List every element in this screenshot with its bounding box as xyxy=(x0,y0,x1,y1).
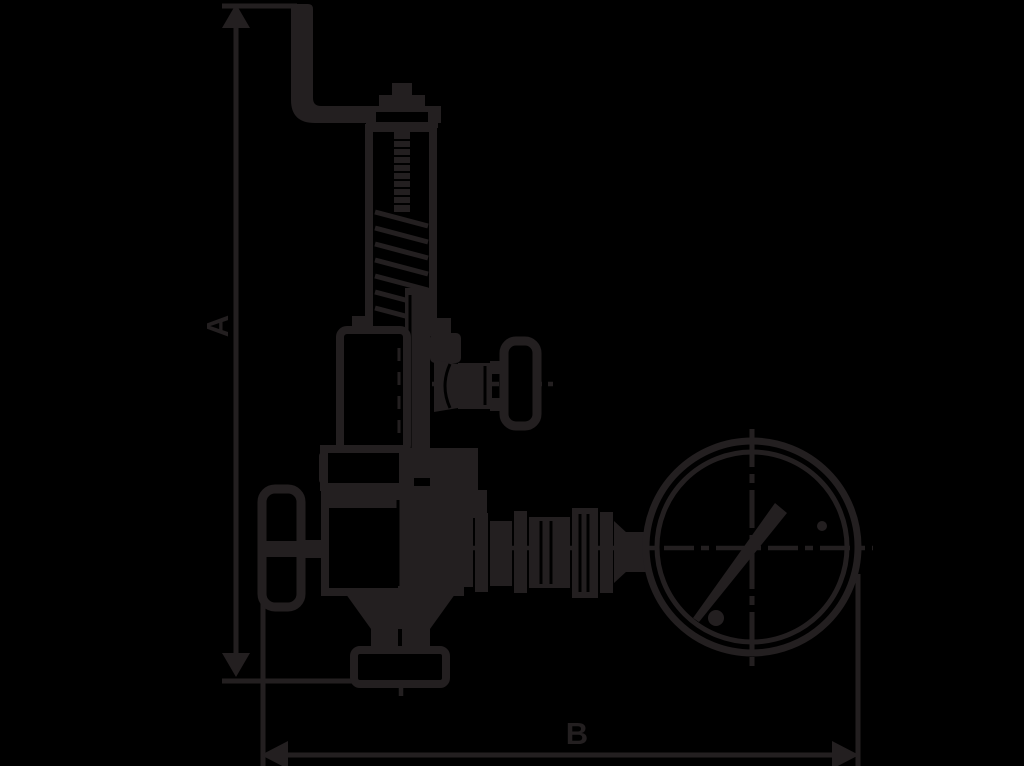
cap-knob xyxy=(366,83,438,128)
left-handwheel-hub xyxy=(266,541,297,557)
fitting-1 xyxy=(453,515,473,587)
fitting-2 xyxy=(475,513,488,592)
fitting-4 xyxy=(514,511,527,593)
gauge-screw-lower xyxy=(708,610,724,626)
yoke-nut xyxy=(430,318,451,333)
cap-knob-top xyxy=(392,83,412,97)
fitting-reducer xyxy=(614,521,627,583)
bonnet-block xyxy=(340,330,407,452)
left-handwheel-assembly xyxy=(262,489,327,607)
gauge-screw-upper xyxy=(817,521,827,531)
fitting-7 xyxy=(600,512,613,593)
housing-top-plate-slot xyxy=(376,112,428,122)
arrowhead-down-icon xyxy=(222,653,250,677)
dimension-b-label: B xyxy=(566,716,588,751)
mid-flange-box xyxy=(324,449,403,487)
spindle-cylinder xyxy=(458,363,492,409)
valve-technical-drawing: A B xyxy=(0,0,1024,766)
side-handwheel xyxy=(504,341,537,426)
technical-drawing-canvas: A B xyxy=(0,0,1024,766)
fitting-3 xyxy=(490,521,512,586)
body-taper xyxy=(343,590,458,629)
bonnet xyxy=(340,330,407,452)
arrowhead-right-icon xyxy=(832,741,859,766)
bottom-flange xyxy=(354,650,446,684)
fitting-6 xyxy=(572,508,598,598)
dimension-a-label: A xyxy=(200,315,235,337)
gauge-needle xyxy=(693,503,787,622)
yoke-shoulder-block xyxy=(430,333,461,363)
body-right-mass xyxy=(398,494,458,590)
valve-body xyxy=(325,490,460,684)
outlet-fittings xyxy=(453,508,648,598)
